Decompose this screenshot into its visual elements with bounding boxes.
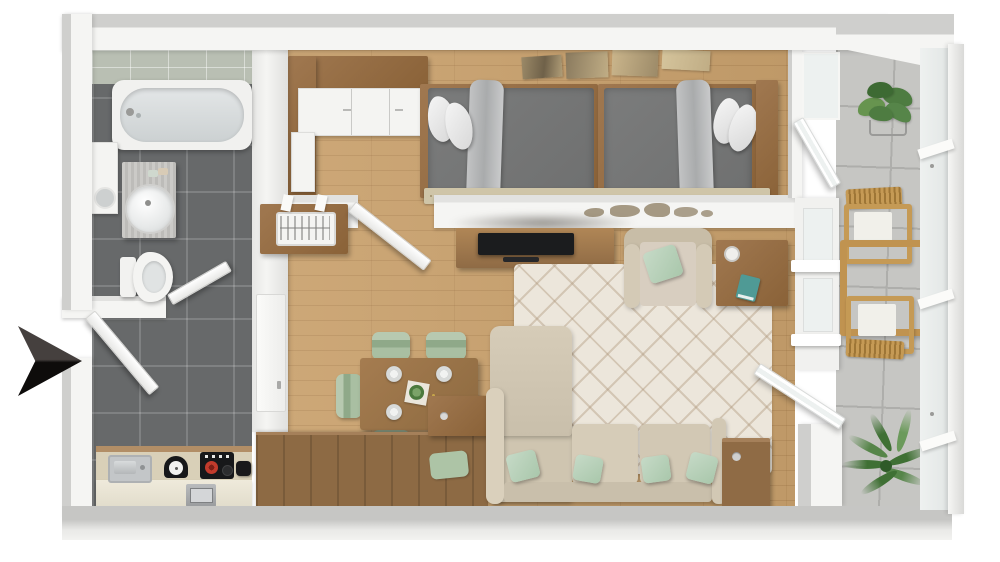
window-sill	[791, 260, 841, 272]
map-blob	[674, 207, 698, 217]
outer-wall-bottom	[62, 506, 952, 540]
sofa	[486, 324, 726, 506]
bathtub-drain	[136, 113, 141, 118]
toilet-seat	[142, 261, 166, 293]
centerpiece-napkin	[404, 380, 429, 405]
door-handle	[277, 381, 281, 389]
dining-chair	[372, 332, 410, 360]
kitchen-counter-front	[96, 480, 252, 506]
bathroom-vanity	[122, 162, 176, 238]
sofa-seat-front	[504, 482, 712, 502]
sink-basin	[125, 184, 175, 234]
burner-dark	[222, 465, 233, 476]
wall-art-panel	[612, 47, 659, 77]
washing-machine-drum	[94, 187, 116, 209]
sink-faucet-icon	[140, 465, 145, 470]
cooktop-knobs	[205, 455, 229, 458]
world-map-wall-art	[584, 201, 716, 225]
sink-faucet-icon	[145, 200, 151, 206]
armchair-arm	[696, 244, 712, 308]
hall-living-door-closed	[256, 294, 286, 412]
outer-wall-left-upper	[62, 14, 92, 310]
map-blob	[701, 210, 713, 217]
sink-well	[114, 461, 136, 474]
potted-plant	[855, 80, 919, 142]
armchair-arm	[624, 244, 640, 308]
wardrobe	[288, 56, 428, 196]
bedroom-balcony-glass	[802, 52, 840, 120]
bench-cushion	[429, 450, 470, 480]
sofa-pillow	[640, 454, 671, 484]
facade-handle	[930, 164, 934, 168]
kitchen-sink	[108, 455, 152, 483]
notebook-pages	[738, 294, 754, 301]
bathtub	[112, 80, 252, 150]
palm-frond	[859, 468, 899, 498]
armchair	[622, 228, 714, 312]
chair-cushion	[858, 304, 896, 336]
plant-stand	[869, 120, 907, 136]
kitchen-scale	[164, 456, 188, 478]
wall-art-panel	[662, 49, 711, 71]
cooktop	[200, 452, 234, 479]
bedroom-wall-art	[522, 46, 712, 80]
centerpiece-plant	[408, 384, 425, 401]
bathtub-faucet-icon	[126, 108, 134, 116]
bathroom-wall-tiles	[92, 50, 252, 84]
scale-needle	[175, 467, 178, 470]
window-glass	[803, 278, 833, 332]
bed-right-throw-blanket	[676, 79, 714, 202]
outer-wall-top	[62, 14, 888, 50]
floorplan-render	[0, 0, 1000, 562]
door-handle	[343, 109, 351, 111]
window-sill	[791, 334, 841, 346]
wardrobe-front-panel	[291, 132, 315, 192]
burner-red	[205, 461, 218, 474]
palm-core	[880, 460, 892, 472]
door-gap	[389, 89, 390, 135]
window-glass	[803, 208, 833, 262]
living-balcony-wall-block	[798, 424, 842, 506]
dinner-plate	[386, 366, 402, 382]
wall-art-panel	[566, 51, 609, 78]
soap-items	[158, 168, 168, 175]
bed-headboard	[756, 80, 778, 202]
door-gap	[351, 89, 352, 135]
dining-chair	[336, 374, 362, 418]
dinner-plate	[436, 366, 452, 382]
bench-knob	[440, 412, 448, 420]
oven	[186, 484, 216, 507]
chair-slat-back	[846, 338, 905, 359]
cabinet-knob	[732, 452, 741, 461]
twin-beds	[420, 80, 778, 204]
radiator-cabinet	[260, 204, 348, 254]
storage-bench	[428, 396, 488, 436]
radiator-bracket	[314, 194, 327, 212]
scale-face	[169, 461, 183, 475]
glass-facade	[920, 44, 964, 514]
radiator	[276, 212, 336, 246]
radiator-grid	[280, 216, 330, 240]
oven-door	[190, 488, 213, 503]
map-blob	[584, 208, 604, 217]
side-table	[716, 240, 788, 306]
palm-plant	[840, 420, 932, 512]
washing-machine	[90, 142, 118, 214]
sofa-pillow	[572, 454, 604, 484]
storage-cabinet	[722, 438, 770, 508]
radiator-bracket	[280, 194, 293, 212]
soundbar	[503, 257, 539, 262]
facade-frame	[948, 44, 964, 514]
mug	[724, 246, 740, 262]
map-blob	[644, 203, 670, 217]
door-handle	[395, 109, 403, 111]
wardrobe-sliding-doors	[298, 88, 428, 136]
dinner-plate	[386, 404, 402, 420]
balcony-chair	[844, 296, 908, 360]
dining-chair	[426, 332, 466, 360]
tv	[478, 233, 574, 255]
map-blob	[610, 205, 640, 217]
notebook	[735, 274, 760, 302]
sofa-armrest-left	[486, 388, 504, 504]
pot	[236, 461, 251, 476]
wall-art-panel	[521, 55, 562, 80]
balcony-window-band	[795, 198, 839, 370]
outer-wall-left-lower	[62, 358, 92, 518]
